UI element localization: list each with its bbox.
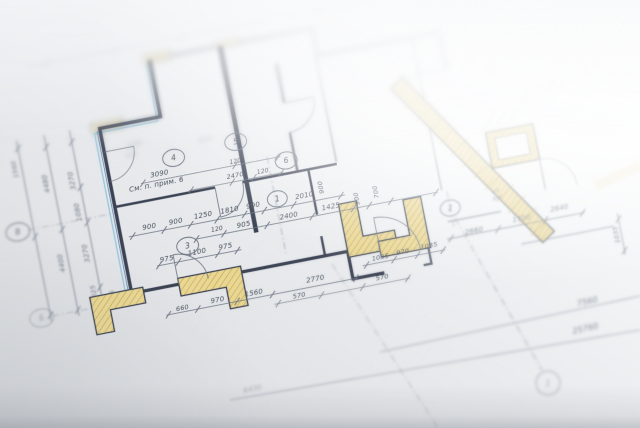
dimension-tick xyxy=(269,291,277,299)
dimension-tick xyxy=(42,60,50,68)
dimension-label: 1080 xyxy=(72,202,83,222)
dimension-label: 1560 xyxy=(9,160,20,179)
dimension-label: 1425 xyxy=(321,201,341,212)
dimension-tick xyxy=(414,251,422,259)
marker-circle-label: 3 xyxy=(184,241,191,251)
dimension-label: 2640 xyxy=(549,202,569,213)
dimension-label: 2660 xyxy=(464,225,484,236)
dimension-tick xyxy=(263,222,271,230)
stair-tread-line xyxy=(484,97,504,130)
dimension-tick xyxy=(261,207,269,215)
dimension-label: 120 xyxy=(256,167,269,176)
dimension-label: 520 xyxy=(125,151,138,160)
dimension-label: 4400 xyxy=(56,253,67,273)
dimension-tick xyxy=(84,219,92,227)
masonry-pillar xyxy=(142,50,171,65)
dimension-label: 3270 xyxy=(66,170,77,190)
dimension-tick xyxy=(14,145,22,153)
dimension-tick xyxy=(249,20,257,28)
dimension-tick xyxy=(621,247,629,255)
marker-circle-label: 2 xyxy=(447,203,454,213)
dimension-label: 975 xyxy=(218,241,234,252)
dimension-tick xyxy=(74,306,82,314)
dimension-line xyxy=(27,0,390,67)
dimension-tick xyxy=(404,275,412,283)
faded-wall-trace xyxy=(595,166,640,186)
marker-circle-label: В xyxy=(14,227,21,237)
dimension-label: 660 xyxy=(175,303,189,313)
axis-circle-label: 1 xyxy=(545,379,550,388)
dimension-label: 900 xyxy=(142,221,158,232)
axis-dash-line xyxy=(455,218,542,370)
dimension-tick xyxy=(193,235,201,243)
dimension-tick xyxy=(432,189,440,197)
dimension-label: 3270 xyxy=(80,243,91,263)
blueprint-photo: 1000520167015604480440032701080327010251… xyxy=(0,0,640,428)
wall-accent-line xyxy=(97,131,128,292)
dimension-tick xyxy=(447,235,455,243)
overall-dimension-label: 7560 xyxy=(576,295,599,308)
overall-dimension-label: 25760 xyxy=(572,321,600,336)
dimension-tick xyxy=(160,226,168,234)
dimension-tick xyxy=(439,246,447,254)
dimension-label: 120 xyxy=(229,157,242,166)
marker-circle-label: 1 xyxy=(274,194,281,204)
stair-tread-line xyxy=(536,77,556,110)
masonry-pillar xyxy=(90,287,150,335)
stair-tread-line xyxy=(549,72,569,105)
dimension-label: БМ xyxy=(492,195,502,203)
dimension-tick xyxy=(615,215,623,223)
axis-dash-line xyxy=(319,10,327,53)
axis-dash-line xyxy=(332,264,438,428)
dimension-tick xyxy=(363,261,371,269)
zone-overlay: 75602576064301 xyxy=(230,22,640,428)
overall-dimension-label: 6430 xyxy=(243,383,263,395)
dimension-tick xyxy=(359,283,367,291)
dimension-tick xyxy=(366,202,374,210)
dimension-tick xyxy=(187,221,195,229)
overall-dimension-line xyxy=(380,296,640,352)
dimension-tick xyxy=(387,197,395,205)
dimension-tick xyxy=(175,258,183,266)
dimension-tick xyxy=(42,143,50,151)
dimension-label: 900 xyxy=(352,192,362,206)
dimension-label: 2470 xyxy=(226,170,245,181)
wall xyxy=(400,69,447,78)
dimension-label: 970 xyxy=(396,247,410,257)
dimension-label: 2010 xyxy=(294,190,314,201)
dimension-tick xyxy=(337,192,345,200)
dimension-line xyxy=(195,192,438,239)
stair-tread-line xyxy=(510,87,530,120)
dimension-tick xyxy=(290,201,298,209)
dimension-label: 900 xyxy=(168,216,184,227)
dimension-label: 700 xyxy=(371,185,381,199)
dimension-tick xyxy=(31,233,39,241)
faded-wall-trace xyxy=(545,52,582,62)
dimension-tick xyxy=(68,138,76,146)
dimension-label: 4480 xyxy=(40,173,51,193)
dimension-label: 900 xyxy=(316,180,326,194)
dimension-tick xyxy=(309,213,317,221)
marker-circle-label: Б xyxy=(38,313,45,323)
dimension-line xyxy=(16,141,51,322)
dimension-label: 2770 xyxy=(305,273,325,284)
dimension-label: 120 xyxy=(210,225,223,234)
door-swing-arc xyxy=(284,97,319,132)
dimension-tick xyxy=(180,33,188,41)
marker-circle-label: 6 xyxy=(283,156,290,166)
marker-circle-label: 4 xyxy=(170,153,177,163)
dimension-tick xyxy=(275,300,283,308)
faded-wall-trace xyxy=(470,22,620,45)
dimension-tick xyxy=(234,247,242,255)
dimension-tick xyxy=(241,211,249,219)
dimension-line xyxy=(274,278,409,304)
dimension-tick xyxy=(194,305,202,313)
axis-dash-line xyxy=(28,213,116,230)
stair-tread-line xyxy=(523,82,543,115)
dimension-tick xyxy=(317,6,325,14)
wall xyxy=(276,64,284,103)
dimension-tick xyxy=(213,216,221,224)
dimension-label: 900 xyxy=(246,200,262,211)
dimension-tick xyxy=(165,311,173,319)
dimension-label: 1250 xyxy=(193,210,213,221)
stair-tread-line xyxy=(497,92,517,125)
dimension-tick xyxy=(579,209,587,217)
door-swing-arc xyxy=(540,153,578,191)
dimension-tick xyxy=(111,46,119,54)
dimension-tick xyxy=(129,232,137,240)
dimension-tick xyxy=(494,226,502,234)
dimension-label: 1810 xyxy=(220,204,240,215)
wall xyxy=(149,4,446,124)
dimension-tick xyxy=(318,291,326,299)
dimension-label: 1670 xyxy=(196,135,213,145)
dimension-label: 570 xyxy=(292,290,306,300)
dimension-tick xyxy=(58,226,66,234)
wall xyxy=(316,56,337,162)
floor-plan-drawing: 1000520167015604480440032701080327010251… xyxy=(0,0,640,428)
wall xyxy=(321,236,325,256)
dimension-label: 570 xyxy=(375,272,389,282)
dimension-line xyxy=(44,135,79,316)
